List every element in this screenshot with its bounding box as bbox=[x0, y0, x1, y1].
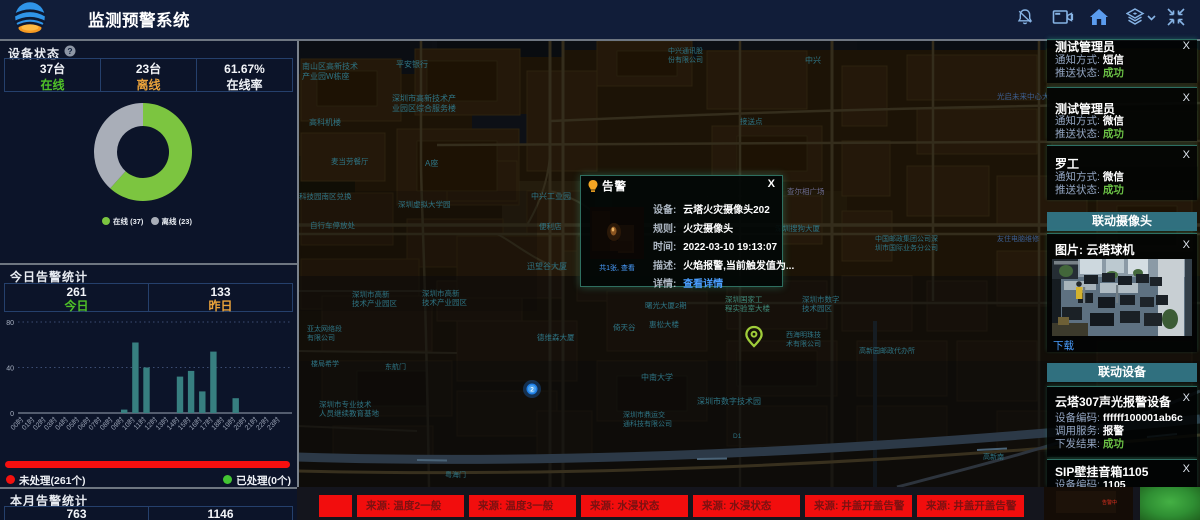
svg-text:份有限公司: 份有限公司 bbox=[668, 55, 703, 64]
svg-text:D1: D1 bbox=[733, 433, 742, 440]
svg-text:80: 80 bbox=[6, 320, 14, 327]
svg-text:深圳市高新技术产: 深圳市高新技术产 bbox=[392, 93, 456, 103]
svg-text:圳市国际业务分公司: 圳市国际业务分公司 bbox=[875, 243, 938, 252]
svg-text:友住电脑维修: 友住电脑维修 bbox=[997, 234, 1039, 243]
svg-text:术有限公司: 术有限公司 bbox=[786, 339, 821, 348]
svg-text:高新园邮政代办所: 高新园邮政代办所 bbox=[859, 346, 915, 355]
svg-text:40: 40 bbox=[6, 366, 14, 373]
svg-text:人员继续教育基地: 人员继续教育基地 bbox=[319, 408, 379, 418]
svg-text:有限公司: 有限公司 bbox=[307, 333, 335, 342]
svg-text:楼局希学: 楼局希学 bbox=[311, 359, 339, 368]
svg-text:中兴: 中兴 bbox=[805, 55, 821, 65]
svg-text:曙光大厦2期: 曙光大厦2期 bbox=[645, 300, 687, 310]
svg-text:便利店: 便利店 bbox=[539, 221, 562, 231]
svg-text:倚天谷: 倚天谷 bbox=[613, 322, 636, 332]
svg-text:中兴工业园: 中兴工业园 bbox=[531, 191, 571, 201]
svg-text:高新南: 高新南 bbox=[983, 452, 1004, 461]
svg-text:查尔相广场: 查尔相广场 bbox=[787, 186, 825, 196]
svg-text:德维森大厦: 德维森大厦 bbox=[537, 332, 575, 342]
svg-text:2: 2 bbox=[530, 387, 534, 394]
svg-text:中国邮政集团公司深: 中国邮政集团公司深 bbox=[875, 234, 938, 243]
svg-text:深圳市专业技术: 深圳市专业技术 bbox=[319, 399, 372, 409]
svg-text:中南大学: 中南大学 bbox=[641, 372, 673, 382]
svg-text:程实验室大楼: 程实验室大楼 bbox=[725, 303, 770, 313]
svg-text:西海明珠技: 西海明珠技 bbox=[786, 330, 821, 339]
svg-text:高科机楼: 高科机楼 bbox=[309, 117, 341, 127]
svg-text:惠松大楼: 惠松大楼 bbox=[649, 319, 679, 329]
svg-text:迅望谷大厦: 迅望谷大厦 bbox=[527, 261, 567, 271]
svg-text:A座: A座 bbox=[425, 158, 438, 168]
svg-text:深圳市高新: 深圳市高新 bbox=[422, 288, 460, 298]
svg-text:深圳国家工: 深圳国家工 bbox=[725, 294, 763, 304]
svg-text:亚太网络段: 亚太网络段 bbox=[307, 324, 342, 333]
svg-text:麦当劳餐厅: 麦当劳餐厅 bbox=[331, 156, 369, 166]
svg-text:深圳虚拟大学园: 深圳虚拟大学园 bbox=[398, 199, 451, 209]
svg-text:深圳市高新: 深圳市高新 bbox=[352, 289, 390, 299]
svg-text:技术产业园区: 技术产业园区 bbox=[352, 298, 397, 308]
svg-text:自行车停放处: 自行车停放处 bbox=[310, 220, 355, 230]
svg-text:粤海门: 粤海门 bbox=[445, 470, 466, 479]
svg-text:0: 0 bbox=[10, 411, 14, 418]
svg-text:光启未来中心大: 光启未来中心大 bbox=[997, 91, 1050, 101]
svg-text:技术产业园区: 技术产业园区 bbox=[422, 297, 467, 307]
svg-text:东航门: 东航门 bbox=[385, 362, 406, 371]
svg-text:深圳市数字技术园: 深圳市数字技术园 bbox=[697, 396, 761, 406]
svg-text:平安银行: 平安银行 bbox=[396, 59, 428, 69]
svg-text:接送点: 接送点 bbox=[740, 116, 763, 126]
svg-text:中兴通讯股: 中兴通讯股 bbox=[668, 46, 703, 55]
svg-text:?: ? bbox=[67, 46, 72, 56]
svg-text:产业园W栋座: 产业园W栋座 bbox=[302, 71, 350, 81]
svg-text:深圳市数字: 深圳市数字 bbox=[802, 294, 840, 304]
svg-text:通科技有限公司: 通科技有限公司 bbox=[623, 419, 672, 428]
svg-text:科技园南区兑换: 科技园南区兑换 bbox=[299, 191, 352, 201]
svg-text:深圳市鼎运交: 深圳市鼎运交 bbox=[623, 410, 665, 419]
svg-text:技术园区: 技术园区 bbox=[802, 303, 832, 313]
svg-text:业园区综合服务楼: 业园区综合服务楼 bbox=[392, 103, 456, 113]
svg-text:南山区高新技术: 南山区高新技术 bbox=[302, 61, 358, 71]
